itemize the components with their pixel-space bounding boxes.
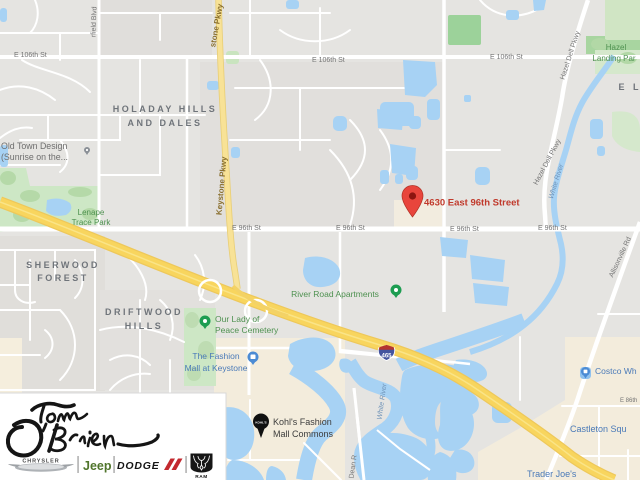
svg-text:E 96th St: E 96th St <box>538 225 567 232</box>
svg-text:DRIFTWOOD: DRIFTWOOD <box>105 307 183 317</box>
svg-text:Landing Par: Landing Par <box>592 54 635 63</box>
svg-text:Mall at Keystone: Mall at Keystone <box>185 363 248 373</box>
svg-text:E 106th St: E 106th St <box>312 57 345 64</box>
svg-text:E 86th: E 86th <box>620 398 637 404</box>
svg-text:E 96th St: E 96th St <box>450 226 479 233</box>
svg-text:Lenape: Lenape <box>78 208 105 217</box>
svg-text:AND DALES: AND DALES <box>127 118 202 128</box>
svg-text:E 96th St: E 96th St <box>232 225 261 232</box>
svg-text:4630 East 96th Street: 4630 East 96th Street <box>424 198 520 209</box>
svg-text:E L: E L <box>618 82 640 92</box>
svg-text:Jeep: Jeep <box>83 459 112 473</box>
svg-text:HILLS: HILLS <box>125 321 164 331</box>
svg-text:rfield Blvd: rfield Blvd <box>90 6 98 37</box>
svg-text:(Sunrise on the...: (Sunrise on the... <box>1 152 68 162</box>
svg-text:Mall Commons: Mall Commons <box>273 429 334 439</box>
svg-text:465: 465 <box>381 354 392 360</box>
svg-text:E 106th St: E 106th St <box>490 54 523 61</box>
svg-text:Our Lady of: Our Lady of <box>215 314 260 324</box>
svg-text:Trader Joe's: Trader Joe's <box>527 469 577 479</box>
svg-text:KOHL'S: KOHL'S <box>255 421 266 425</box>
svg-text:SHERWOOD: SHERWOOD <box>26 260 100 270</box>
svg-text:Trace Park: Trace Park <box>72 218 112 227</box>
svg-text:Castleton Squ: Castleton Squ <box>570 424 627 434</box>
svg-text:E 106th St: E 106th St <box>14 52 47 59</box>
svg-text:River Road Apartments: River Road Apartments <box>291 289 379 299</box>
svg-text:HOLADAY HILLS: HOLADAY HILLS <box>113 104 218 114</box>
svg-text:Old Town Design: Old Town Design <box>1 141 67 151</box>
svg-text:Kohl's Fashion: Kohl's Fashion <box>273 417 332 427</box>
svg-text:Costco Wh: Costco Wh <box>595 366 637 376</box>
svg-text:FOREST: FOREST <box>37 273 89 283</box>
svg-text:Peace Cemetery: Peace Cemetery <box>215 325 279 335</box>
svg-text:RAM: RAM <box>195 474 207 480</box>
svg-text:The Fashion: The Fashion <box>192 351 240 361</box>
svg-text:Hazel: Hazel <box>606 43 627 52</box>
svg-text:DODGE: DODGE <box>117 460 160 472</box>
svg-text:E 96th St: E 96th St <box>336 225 365 232</box>
